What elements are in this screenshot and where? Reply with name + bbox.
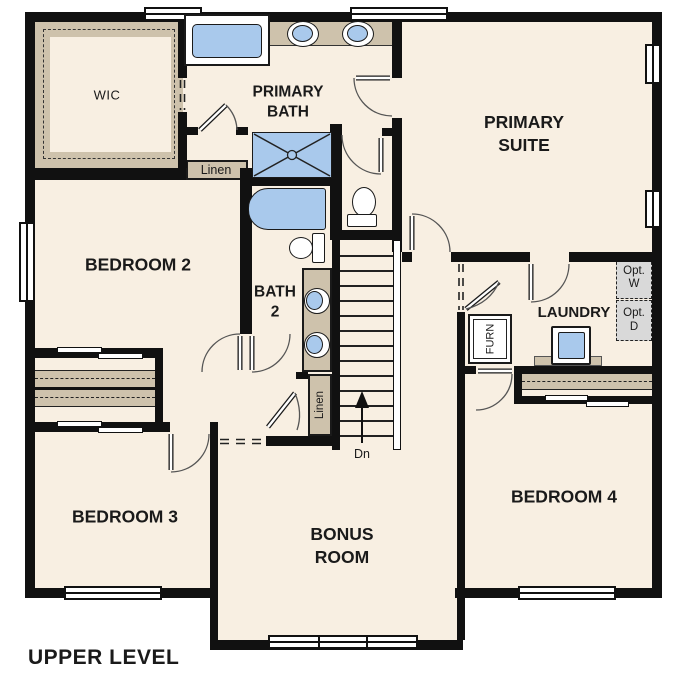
door-furnace-closet [466, 282, 499, 309]
stairs-direction-arrow [355, 391, 369, 443]
bath2-label: BATH 2 [249, 283, 301, 324]
laundry-label: LAUNDRY [499, 303, 649, 323]
door-bedroom3-entry [171, 434, 209, 472]
door-laundry-entry [531, 264, 569, 302]
door-bedroom2-entry [202, 334, 240, 372]
dashed-opening-wic [181, 80, 185, 110]
primary-bath-label: PRIMARY BATH [238, 83, 338, 124]
floor-plan: Linen Opt. W Opt. D [0, 0, 687, 687]
door-bedroom4-entry [476, 371, 512, 410]
wic-label: WIC [94, 86, 121, 103]
linen-primary-label: Linen [201, 162, 232, 179]
door-linen-hall-closet [268, 393, 300, 430]
shower-glass-x [254, 134, 330, 176]
door-linen-primary [200, 105, 237, 130]
primary-suite-label: PRIMARY SUITE [464, 111, 584, 157]
bonus-room-label: BONUS ROOM [297, 523, 387, 569]
door-primary-suite-entry [412, 214, 450, 252]
stairs-down-label: Dn [354, 446, 370, 463]
bedroom2-label: BEDROOM 2 [58, 253, 218, 276]
bedroom4-label: BEDROOM 4 [484, 485, 644, 508]
bedroom3-label: BEDROOM 3 [45, 505, 205, 528]
door-primary-suite-to-bath [354, 78, 392, 116]
plan-title: UPPER LEVEL [28, 646, 179, 670]
dashed-opening-laundry-hall [459, 264, 463, 310]
dashed-opening-bonus-room [220, 440, 264, 444]
door-water-closet [342, 135, 381, 174]
door-bath2-entry [252, 334, 290, 372]
